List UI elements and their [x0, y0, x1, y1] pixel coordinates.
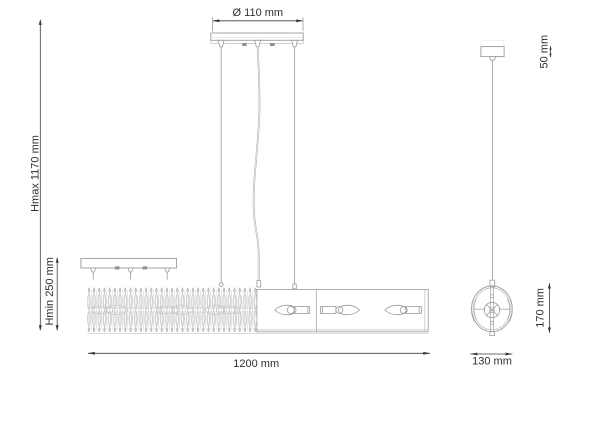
svg-text:1200 mm: 1200 mm — [233, 358, 279, 370]
svg-text:130 mm: 130 mm — [472, 356, 512, 368]
svg-text:Hmin 250 mm: Hmin 250 mm — [44, 257, 56, 325]
svg-text:50 mm: 50 mm — [539, 35, 551, 69]
svg-text:170 mm: 170 mm — [535, 288, 547, 328]
svg-text:Hmax 1170 mm: Hmax 1170 mm — [30, 135, 42, 212]
svg-text:Ø 110 mm: Ø 110 mm — [233, 7, 284, 19]
